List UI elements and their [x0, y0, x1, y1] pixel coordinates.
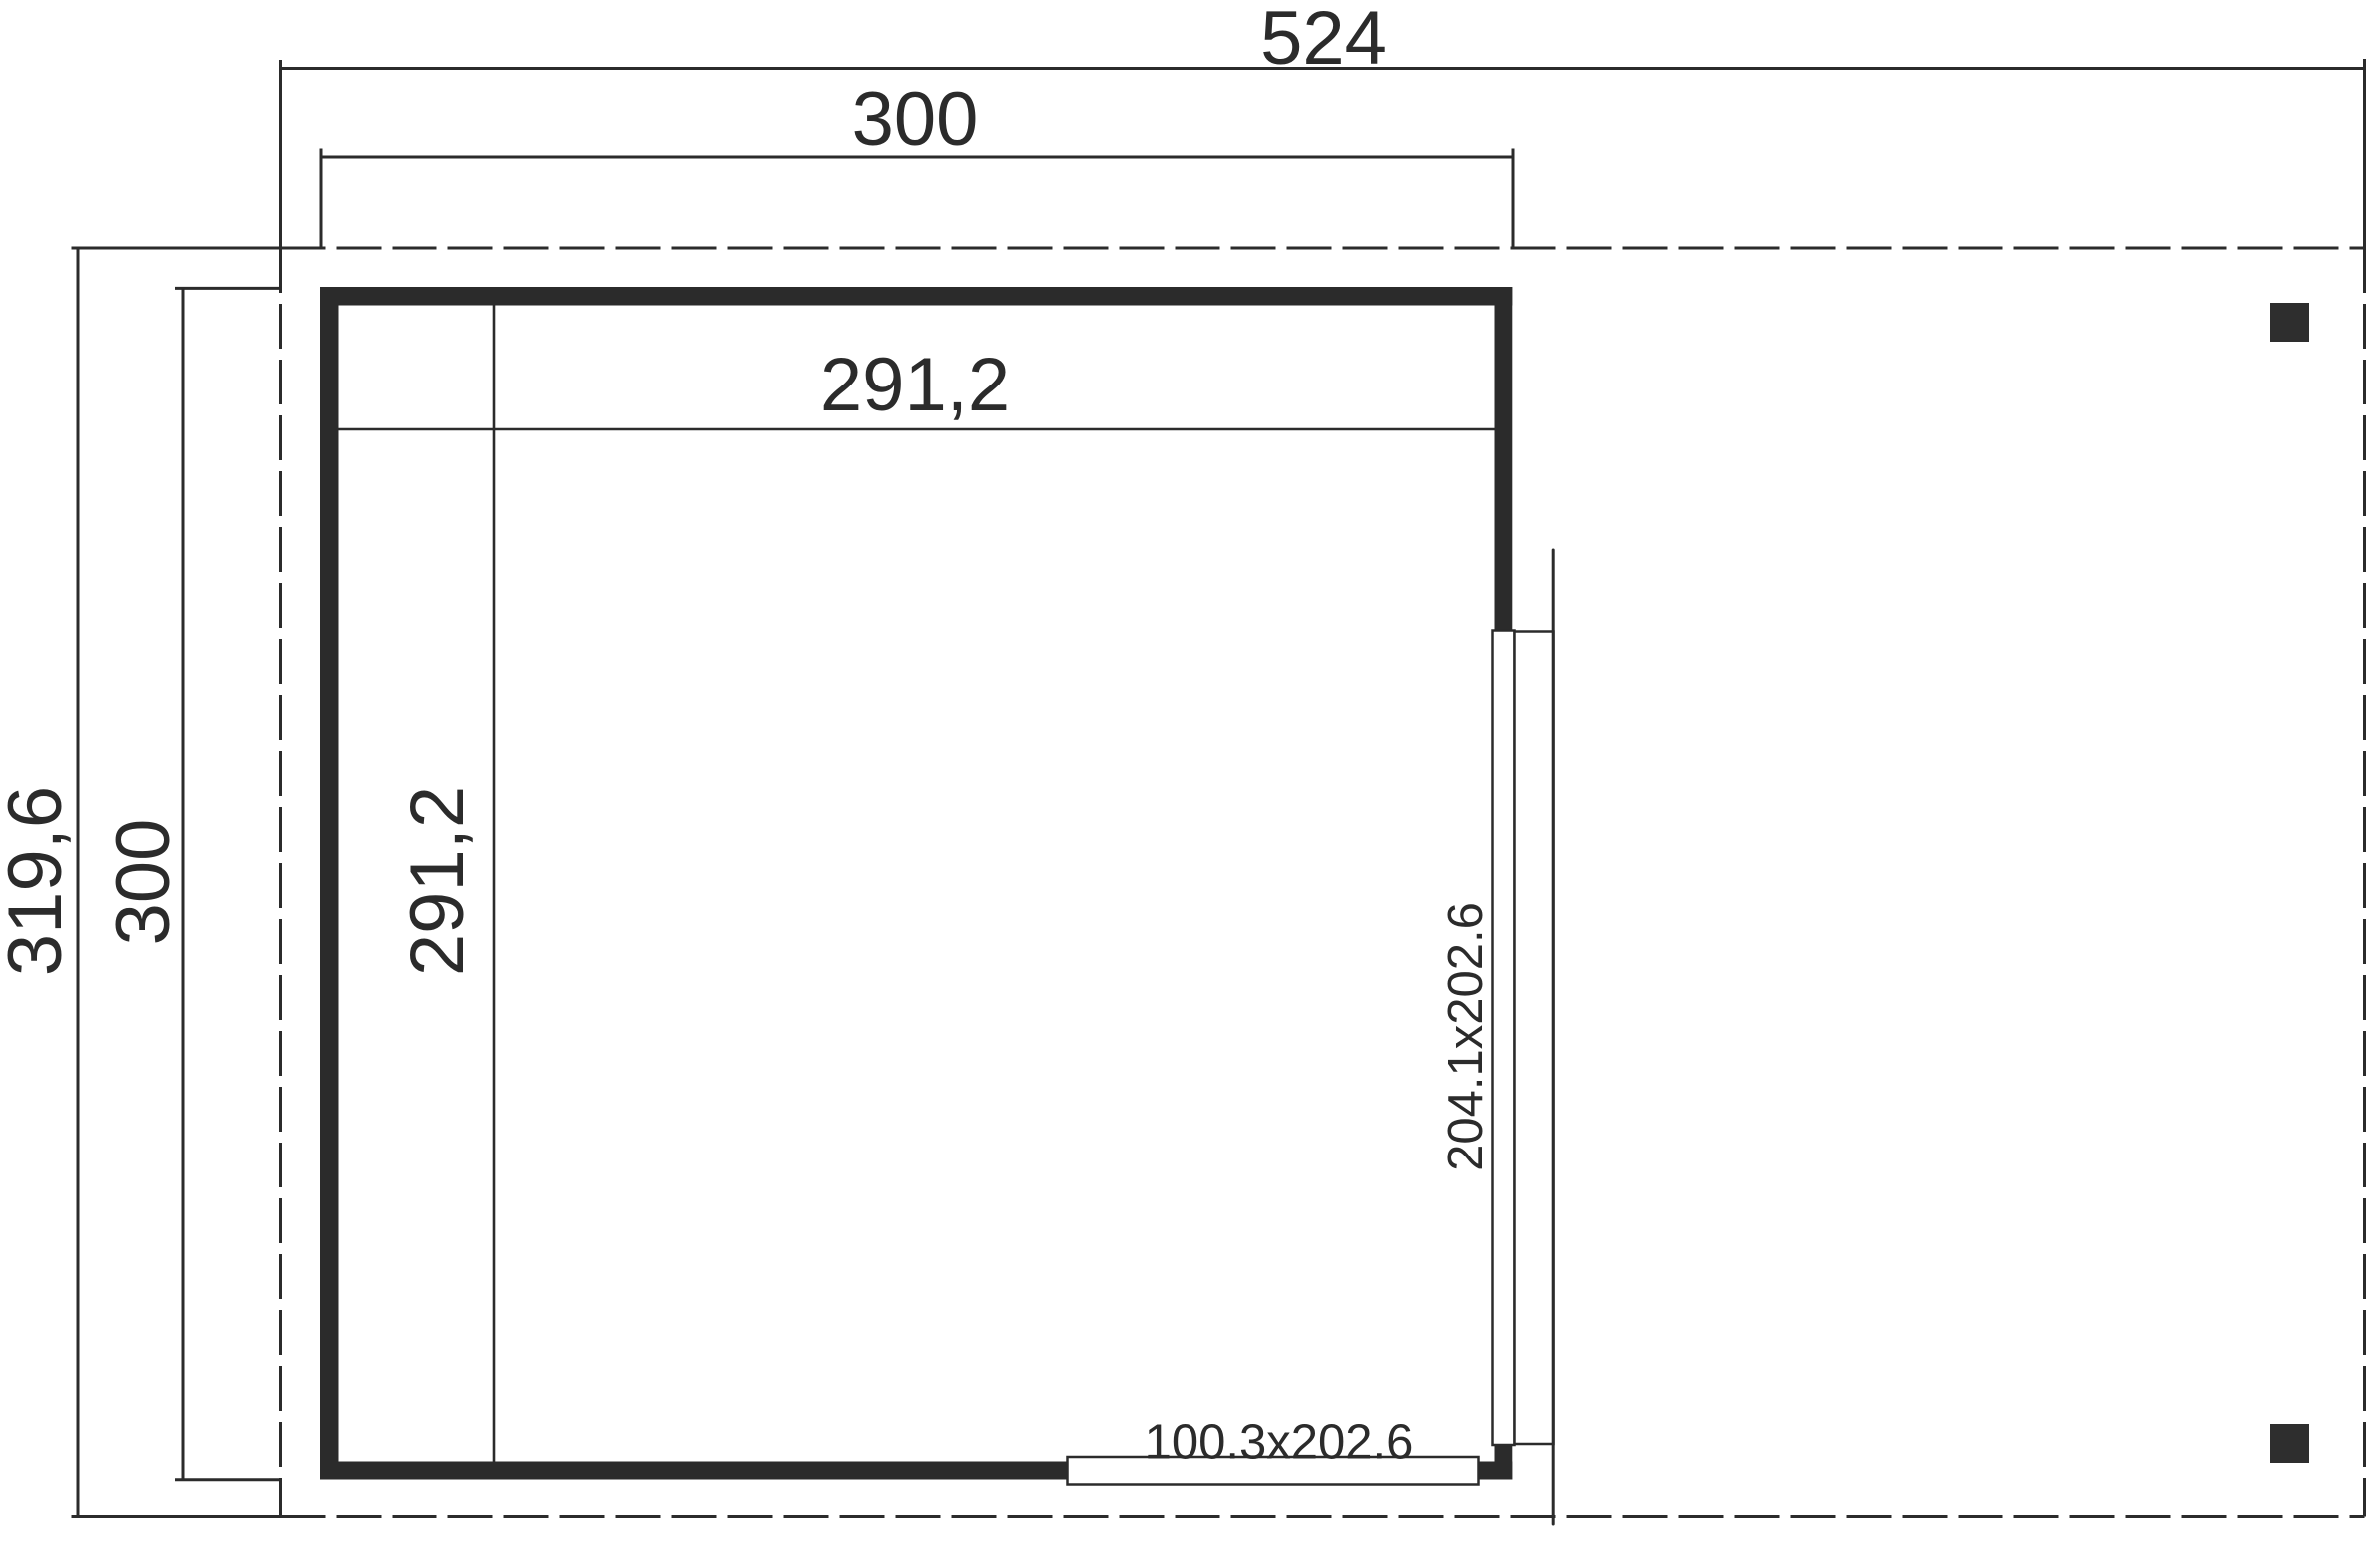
svg-text:300: 300 — [101, 819, 186, 946]
svg-text:204.1x202.6: 204.1x202.6 — [1439, 902, 1493, 1171]
svg-text:300: 300 — [852, 77, 979, 162]
svg-text:524: 524 — [1260, 0, 1387, 81]
svg-text:291,2: 291,2 — [396, 786, 480, 976]
svg-text:291,2: 291,2 — [820, 343, 1010, 427]
svg-text:319,6: 319,6 — [0, 786, 78, 976]
svg-text:100.3x202.6: 100.3x202.6 — [1145, 1416, 1414, 1470]
